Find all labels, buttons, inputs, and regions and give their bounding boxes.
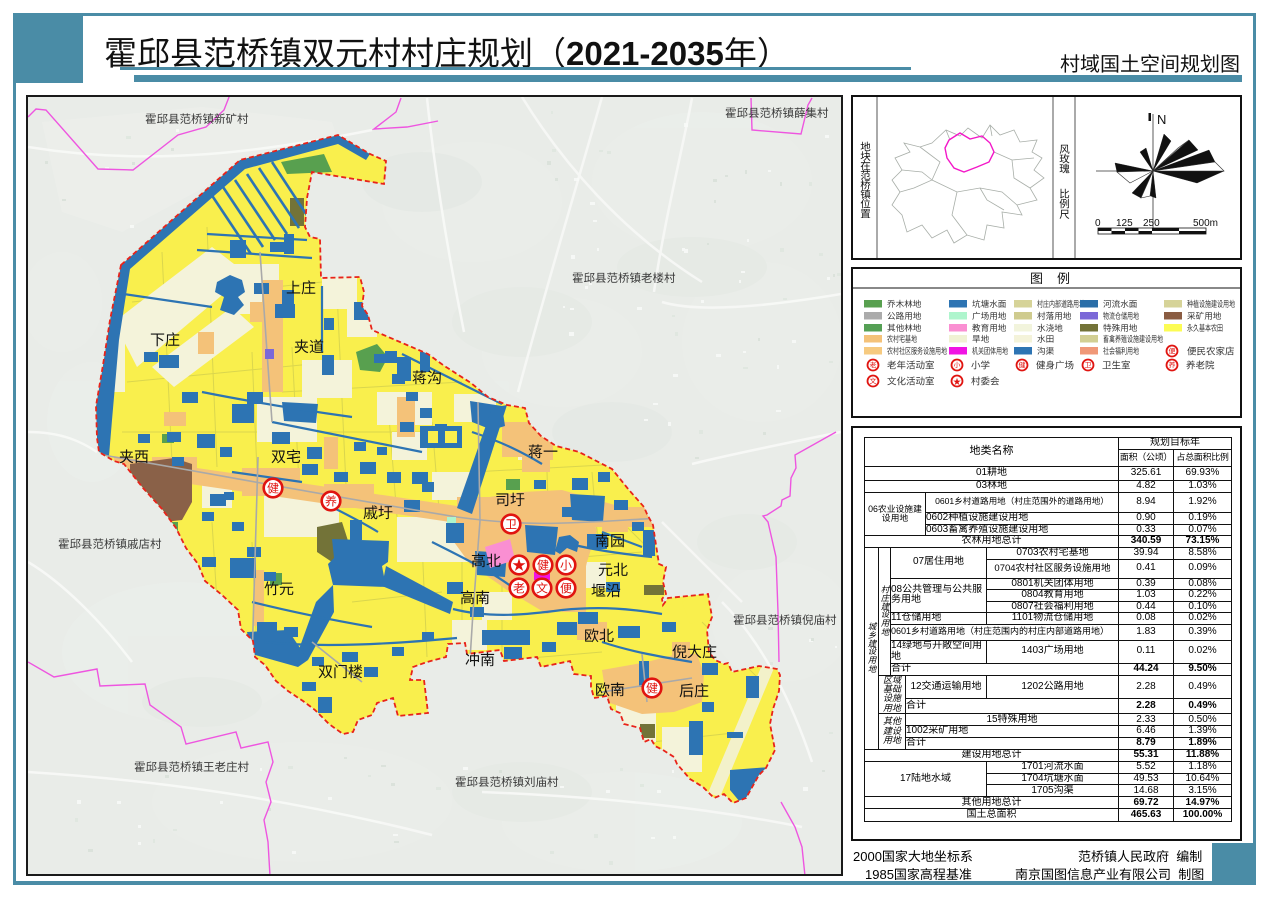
svg-text:N: N (1157, 112, 1166, 127)
svg-text:后庄: 后庄 (679, 683, 709, 700)
svg-text:霍邱县范桥镇薛集村: 霍邱县范桥镇薛集村 (725, 107, 829, 120)
svg-text:公路用地: 公路用地 (887, 311, 922, 321)
svg-text:文: 文 (870, 378, 877, 386)
svg-text:沟渠: 沟渠 (1037, 346, 1055, 356)
svg-text:老: 老 (513, 582, 525, 596)
svg-text:便: 便 (1169, 348, 1176, 356)
svg-text:上庄: 上庄 (286, 280, 316, 297)
svg-text:乔木林地: 乔木林地 (887, 299, 922, 309)
svg-text:★: ★ (512, 557, 526, 573)
svg-text:河流水面: 河流水面 (1103, 299, 1138, 309)
svg-text:广场用地: 广场用地 (972, 311, 1007, 321)
svg-text:农村社区服务设施用地: 农村社区服务设施用地 (887, 346, 947, 356)
svg-text:堰沿: 堰沿 (591, 583, 621, 600)
svg-text:250: 250 (1143, 218, 1160, 229)
svg-text:水田: 水田 (1037, 334, 1054, 344)
svg-text:采矿用地: 采矿用地 (1187, 311, 1222, 321)
svg-text:倪大庄: 倪大庄 (672, 644, 717, 661)
svg-text:高北: 高北 (471, 553, 501, 570)
svg-text:双宅: 双宅 (271, 449, 301, 466)
svg-text:文化活动室: 文化活动室 (887, 376, 935, 388)
svg-text:农村宅基地: 农村宅基地 (887, 334, 917, 344)
svg-text:特殊用地: 特殊用地 (1103, 323, 1138, 333)
svg-text:竹元: 竹元 (264, 581, 294, 598)
svg-text:便民农家店: 便民农家店 (1187, 346, 1235, 358)
svg-text:霍邱县范桥镇王老庄村: 霍邱县范桥镇王老庄村 (134, 761, 249, 774)
svg-text:小: 小 (954, 362, 961, 370)
svg-text:卫: 卫 (1085, 362, 1092, 370)
svg-text:养: 养 (325, 495, 337, 509)
svg-text:养: 养 (1169, 362, 1176, 370)
svg-text:种植设施建设用地: 种植设施建设用地 (1187, 299, 1235, 309)
svg-text:司圩: 司圩 (495, 492, 525, 509)
svg-text:0: 0 (1095, 218, 1101, 229)
svg-text:老年活动室: 老年活动室 (887, 360, 935, 372)
svg-text:卫: 卫 (505, 518, 517, 532)
svg-text:南园: 南园 (595, 533, 625, 550)
svg-text:健: 健 (1019, 362, 1026, 370)
svg-text:冲南: 冲南 (465, 652, 495, 669)
svg-text:水浇地: 水浇地 (1037, 323, 1063, 333)
svg-text:文: 文 (536, 582, 548, 596)
svg-text:风玫瑰: 风玫瑰 (1058, 143, 1070, 173)
svg-text:霍邱县范桥镇刘庙村: 霍邱县范桥镇刘庙村 (455, 776, 559, 789)
svg-text:老: 老 (870, 362, 877, 370)
svg-text:蒋一: 蒋一 (528, 444, 558, 461)
svg-text:养老院: 养老院 (1186, 360, 1215, 372)
svg-text:健: 健 (646, 682, 658, 696)
svg-text:500m: 500m (1193, 218, 1218, 229)
svg-text:村落用地: 村落用地 (1037, 311, 1072, 321)
svg-text:机关团体用地: 机关团体用地 (972, 346, 1008, 356)
svg-text:霍邱县范桥镇倪庙村: 霍邱县范桥镇倪庙村 (733, 614, 837, 627)
svg-text:小: 小 (560, 559, 572, 573)
svg-text:戚圩: 戚圩 (363, 505, 393, 522)
svg-text:图例: 图例 (1030, 271, 1084, 286)
svg-text:健: 健 (267, 482, 279, 496)
svg-text:下庄: 下庄 (150, 332, 180, 349)
svg-text:坑塘水面: 坑塘水面 (972, 299, 1007, 309)
svg-text:村委会: 村委会 (971, 377, 1000, 388)
svg-text:霍邱县范桥镇戚店村: 霍邱县范桥镇戚店村 (58, 538, 162, 551)
svg-text:旱地: 旱地 (972, 334, 990, 344)
svg-text:社会福利用地: 社会福利用地 (1103, 346, 1139, 356)
svg-text:霍邱县范桥镇新矿村: 霍邱县范桥镇新矿村 (145, 113, 249, 126)
svg-text:畜禽养殖设施建设用地: 畜禽养殖设施建设用地 (1103, 334, 1163, 344)
svg-text:欧南: 欧南 (595, 682, 625, 699)
svg-text:蒋沟: 蒋沟 (412, 370, 442, 387)
svg-text:地块在范桥镇位置: 地块在范桥镇位置 (859, 141, 871, 218)
svg-text:教育用地: 教育用地 (972, 323, 1007, 333)
svg-text:欧北: 欧北 (584, 628, 614, 645)
svg-text:125: 125 (1116, 218, 1133, 229)
svg-text:卫生室: 卫生室 (1102, 360, 1131, 372)
svg-text:双门楼: 双门楼 (318, 664, 363, 681)
svg-text:永久基本农田: 永久基本农田 (1187, 323, 1223, 333)
svg-text:霍邱县范桥镇老楼村: 霍邱县范桥镇老楼村 (572, 272, 676, 285)
svg-text:比例尺: 比例尺 (1058, 188, 1070, 219)
svg-text:健身广场: 健身广场 (1036, 360, 1074, 372)
svg-text:健: 健 (537, 559, 549, 573)
svg-text:便: 便 (560, 582, 572, 596)
svg-text:夹西: 夹西 (119, 449, 149, 466)
svg-text:其他林地: 其他林地 (887, 323, 922, 333)
svg-text:夹道: 夹道 (294, 339, 324, 356)
svg-text:物流仓储用地: 物流仓储用地 (1103, 311, 1139, 321)
svg-text:元北: 元北 (598, 562, 628, 579)
svg-text:小学: 小学 (971, 360, 990, 372)
svg-text:高南: 高南 (460, 590, 490, 607)
svg-text:★: ★ (953, 378, 961, 387)
svg-text:村庄内部道路用地: 村庄内部道路用地 (1037, 299, 1085, 309)
